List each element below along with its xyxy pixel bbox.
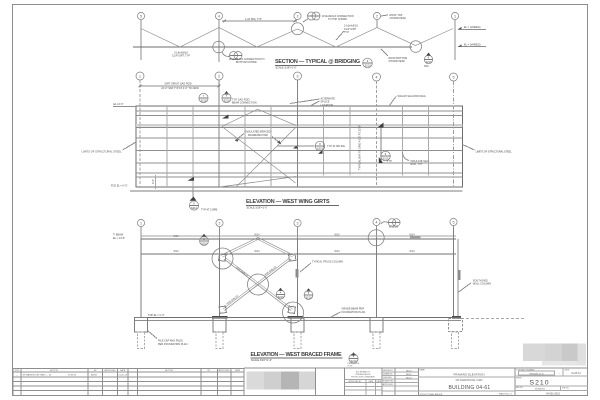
svg-text:2: 2 (376, 14, 378, 18)
svg-text:MLB-V: MLB-V (406, 374, 412, 376)
svg-text:S210: S210 (530, 380, 549, 387)
svg-text:BOTTOM CHORD: BOTTOM CHORD (236, 61, 257, 64)
svg-text:W24: W24 (334, 234, 340, 237)
svg-text:W24: W24 (334, 250, 340, 253)
svg-text:DATE: DATE (235, 369, 241, 372)
svg-text:SIM: SIM (424, 65, 428, 68)
svg-text:S210: S210 (317, 147, 323, 150)
svg-text:3: 3 (297, 14, 299, 18)
svg-text:5M WAREHOUSE YARD: 5M WAREHOUSE YARD (456, 379, 483, 382)
svg-text:W12x26: W12x26 (389, 226, 399, 229)
svg-text:TYP: TYP (344, 31, 349, 34)
svg-text:DRAWN BY: DRAWN BY (383, 373, 393, 376)
svg-text:S210: S210 (426, 61, 432, 64)
svg-text:W-828702: W-828702 (535, 389, 546, 391)
svg-text:CLIP GIRT, TYP: CLIP GIRT, TYP (172, 55, 190, 58)
svg-text:1-10 SPA, TYP: 1-10 SPA, TYP (245, 18, 262, 21)
svg-text:04-001-S210: 04-001-S210 (546, 393, 560, 396)
svg-text:NAME: NAME (420, 369, 426, 372)
svg-text:GIRT SPA AT SAG ROD: GIRT SPA AT SAG ROD (165, 83, 192, 86)
svg-text:TOP EL = 0'-0": TOP EL = 0'-0" (148, 314, 165, 317)
svg-text:RANTOUL, IL: RANTOUL, IL (499, 392, 513, 395)
svg-text:22'-0" SPA TYP AT 4'-0" TO GRI: 22'-0" SPA TYP AT 4'-0" TO GRID (161, 87, 199, 90)
svg-text:S210: S210 (278, 296, 284, 299)
svg-text:EL = (VARIES): EL = (VARIES) (464, 44, 481, 47)
svg-text:PER FOUNDATION PLAN: PER FOUNDATION PLAN (158, 343, 188, 346)
svg-text:FCE EL = 0'-0": FCE EL = 0'-0" (111, 184, 128, 187)
svg-text:MLB-G: MLB-G (406, 370, 412, 372)
svg-text:5: 5 (140, 14, 142, 18)
svg-text:W24: W24 (173, 250, 179, 253)
svg-text:5M WAREHOUSE YARD — 06: 5M WAREHOUSE YARD — 06 (23, 374, 53, 377)
svg-text:BEAM CONNECTION: BEAM CONNECTION (232, 102, 257, 105)
svg-text:DESIGN BY: DESIGN BY (383, 370, 394, 372)
svg-text:ACTION: ACTION (165, 369, 173, 372)
svg-text:SHP NO: SHP NO (562, 388, 569, 390)
svg-text:APPROVED BY: APPROVED BY (349, 380, 363, 383)
svg-text:W912BV-17-D: W912BV-17-D (530, 373, 544, 375)
svg-text:ARNG: ARNG (91, 374, 97, 377)
svg-text:W24: W24 (254, 250, 260, 253)
svg-text:S210: S210 (201, 99, 207, 102)
svg-text:4'-0": 4'-0" (152, 179, 155, 184)
svg-text:4: 4 (218, 14, 220, 18)
svg-text:TYPICAL BAY AT GRID 4 1/2' AT: TYPICAL BAY AT GRID 4 1/2' AT 22'-0" (358, 125, 362, 170)
svg-text:SCALE 3/16"=1'-0": SCALE 3/16"=1'-0" (247, 206, 268, 209)
svg-text:WALL COLUMN: WALL COLUMN (473, 283, 491, 286)
svg-text:EL = (VARIES): EL = (VARIES) (464, 26, 481, 29)
svg-text:TYPICAL TRUSS COLUMN: TYPICAL TRUSS COLUMN (312, 260, 343, 263)
svg-text:PROTECTION & STANDARD: PROTECTION & STANDARD (351, 376, 375, 379)
svg-text:TYP AT CURB: TYP AT CURB (201, 209, 217, 212)
svg-text:SUBMITTED: SUBMITTED (383, 381, 394, 383)
svg-text:W24: W24 (254, 234, 260, 237)
svg-text:1: 1 (139, 74, 141, 78)
svg-text:S210: S210 (201, 242, 207, 245)
svg-text:W10x15 SAG ROD DIAG: W10x15 SAG ROD DIAG (398, 95, 426, 98)
svg-text:FRAME BEYOND: FRAME BEYOND (248, 134, 268, 137)
svg-text:01-05-13: 01-05-13 (571, 373, 581, 375)
svg-text:FOUNDATION PLAN: FOUNDATION PLAN (342, 311, 366, 314)
svg-text:DATE: DATE (120, 369, 126, 372)
svg-text:2: 2 (219, 221, 221, 225)
svg-text:ACTION: ACTION (50, 369, 58, 372)
svg-text:TO TOP CHORD: TO TOP CHORD (328, 18, 347, 21)
svg-text:MLB-G: MLB-G (406, 377, 412, 379)
svg-text:STRUCTURAL ANDER: STRUCTURAL ANDER (420, 393, 443, 396)
svg-text:5: 5 (453, 75, 455, 79)
svg-text:DATE: DATE (368, 380, 373, 383)
svg-text:DATE: DATE (376, 380, 381, 383)
svg-text:SHEET: SHEET (516, 378, 523, 380)
svg-text:W24: W24 (409, 250, 415, 253)
svg-text:S210: S210 (224, 99, 230, 102)
svg-text:ELEVATION — WEST WING GIRTS: ELEVATION — WEST WING GIRTS (246, 199, 330, 205)
svg-text:1: 1 (454, 14, 456, 18)
svg-text:S210: S210 (306, 296, 312, 299)
svg-text:APPROVED: APPROVED (218, 369, 230, 372)
svg-text:SYM: SYM (15, 370, 20, 372)
svg-text:FRAMING ELEVATION: FRAMING ELEVATION (453, 372, 484, 376)
svg-text:SECTION — TYPICAL @ BRIDGING: SECTION — TYPICAL @ BRIDGING (275, 59, 361, 65)
svg-text:EL = 13'-6": EL = 13'-6" (113, 237, 125, 240)
svg-text:EL 13'-6": EL 13'-6" (114, 103, 124, 106)
svg-text:ROD, TYP: ROD, TYP (411, 163, 423, 166)
svg-text:DATE: DATE (565, 368, 570, 371)
svg-text:TYP. W SPLICE: TYP. W SPLICE (327, 145, 345, 148)
svg-text:S210: S210 (191, 207, 197, 210)
svg-text:APPROVED: APPROVED (383, 383, 394, 386)
svg-text:3: 3 (297, 74, 299, 78)
svg-text:LIMITS OF STRUCTURAL STEEL: LIMITS OF STRUCTURAL STEEL (476, 151, 513, 154)
svg-text:CHECKED: CHECKED (383, 377, 392, 379)
svg-text:1: 1 (140, 221, 142, 225)
svg-text:LIMITS OF STRUCTURAL STEEL: LIMITS OF STRUCTURAL STEEL (82, 151, 123, 154)
svg-text:3: 3 (297, 221, 299, 225)
svg-text:ACCEPTABILITY: ACCEPTABILITY (356, 370, 371, 373)
svg-text:REF NO: REF NO (516, 387, 523, 389)
svg-text:4: 4 (376, 220, 378, 224)
svg-text:PER ARMY AR415: PER ARMY AR415 (355, 373, 370, 376)
svg-text:TYP: TYP (387, 160, 392, 163)
svg-text:5: 5 (453, 220, 455, 224)
svg-text:07/02/13: 07/02/13 (68, 375, 77, 377)
svg-text:CHORD PEAK: CHORD PEAK (389, 60, 406, 63)
svg-text:SCALE 3/16"=1'-0": SCALE 3/16"=1'-0" (276, 66, 297, 69)
svg-text:01-05-13: 01-05-13 (119, 375, 128, 377)
svg-text:CHORD PEAK: CHORD PEAK (390, 17, 407, 20)
svg-text:SCALE 3/16"=1'-0": SCALE 3/16"=1'-0" (251, 359, 272, 362)
svg-text:4: 4 (376, 75, 378, 79)
svg-text:ELEVATION — WEST BRACED FRAME: ELEVATION — WEST BRACED FRAME (251, 352, 343, 358)
svg-text:W24: W24 (173, 235, 179, 238)
svg-text:2: 2 (218, 74, 220, 78)
svg-text:PLOT: PLOT (348, 365, 354, 367)
svg-text:S210: S210 (365, 65, 371, 68)
svg-text:BUILDING 04-61: BUILDING 04-61 (449, 385, 491, 391)
svg-text:APPROVED: APPROVED (104, 369, 116, 372)
svg-text:LOCATION: LOCATION (321, 104, 334, 107)
